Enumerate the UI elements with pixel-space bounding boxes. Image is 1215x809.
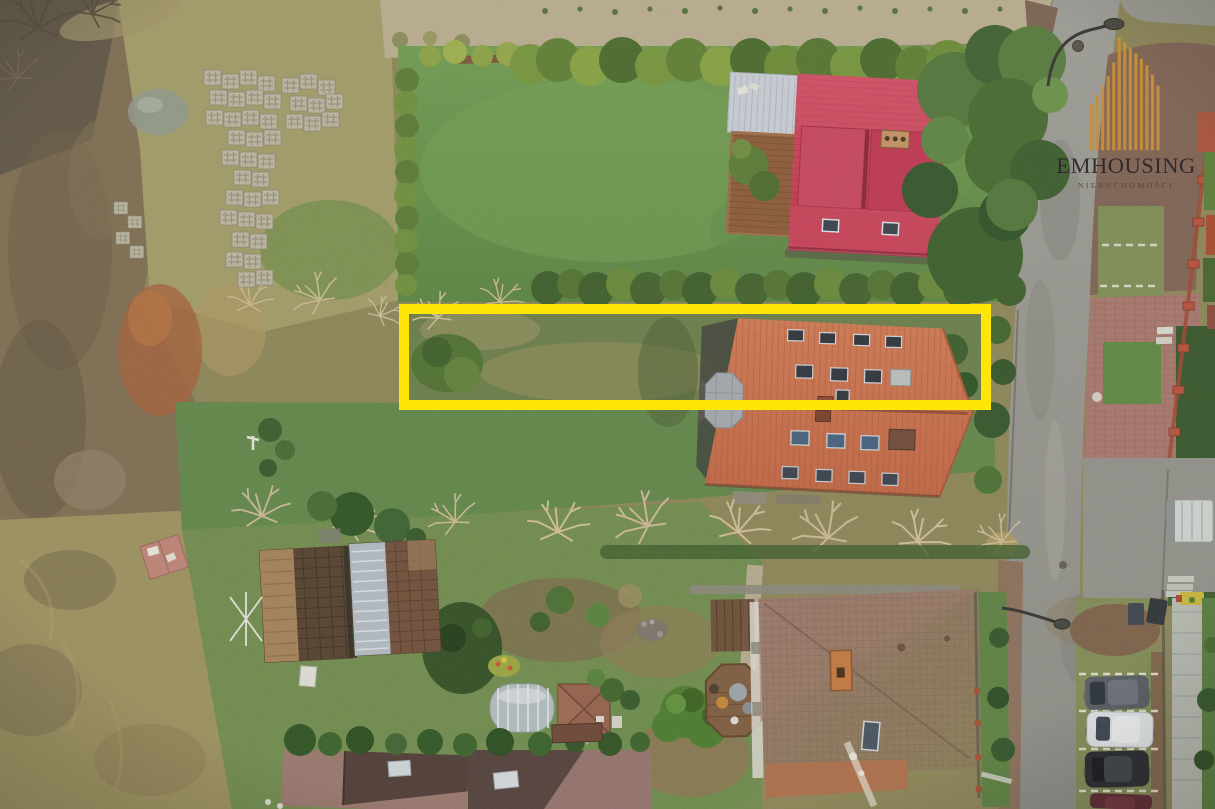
aerial-photo-canvas	[0, 0, 1215, 809]
aerial-photo: EMHOUSING NIERUCHOMOŚCI	[0, 0, 1215, 809]
